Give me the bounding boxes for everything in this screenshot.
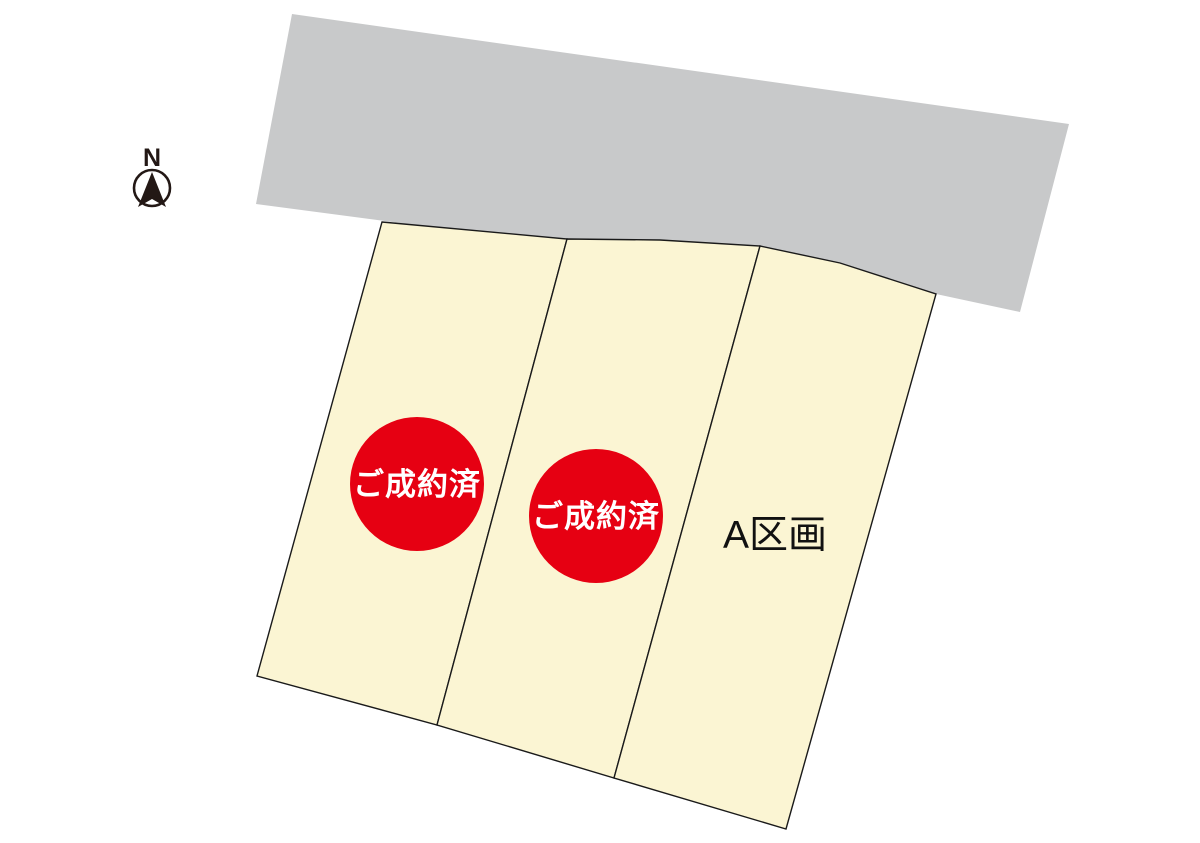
north-compass: N — [134, 144, 170, 207]
north-arrow-icon — [138, 172, 166, 207]
lot-a-label: A区画 — [723, 514, 827, 557]
sold-badge-2: ご成約済 — [529, 449, 663, 583]
sold-badge-label: ご成約済 — [532, 499, 660, 534]
land-plot-map: ご成約済 ご成約済 A区画 N — [0, 0, 1200, 843]
sold-badge-label: ご成約済 — [353, 467, 481, 502]
site-plan-svg: ご成約済 ご成約済 A区画 N — [0, 0, 1200, 843]
north-label: N — [143, 144, 161, 172]
sold-badge-1: ご成約済 — [350, 417, 484, 551]
